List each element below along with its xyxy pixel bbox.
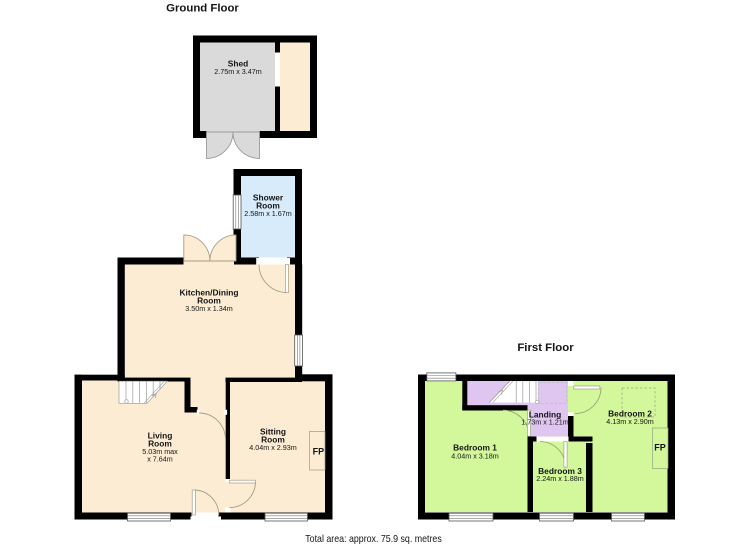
svg-text:4.04m x 2.93m: 4.04m x 2.93m	[249, 443, 297, 452]
svg-text:4.13m x 2.90m: 4.13m x 2.90m	[606, 417, 654, 426]
svg-text:Ground Floor: Ground Floor	[166, 2, 239, 14]
svg-text:2.75m x 3.47m: 2.75m x 3.47m	[214, 67, 262, 76]
svg-text:First Floor: First Floor	[517, 342, 574, 354]
svg-text:4.04m x 3.18m: 4.04m x 3.18m	[451, 452, 499, 461]
svg-text:2.58m x 1.67m: 2.58m x 1.67m	[244, 209, 292, 218]
svg-text:3.50m x 1.34m: 3.50m x 1.34m	[185, 304, 233, 313]
svg-text:Total area: approx. 75.9 sq. m: Total area: approx. 75.9 sq. metres	[305, 534, 442, 545]
svg-text:FP: FP	[654, 442, 666, 452]
svg-text:x 7.64m: x 7.64m	[147, 454, 173, 463]
svg-text:2.24m x 1.88m: 2.24m x 1.88m	[536, 474, 584, 483]
svg-text:FP: FP	[313, 446, 325, 456]
svg-text:1.73m x 1.21m: 1.73m x 1.21m	[521, 418, 569, 427]
